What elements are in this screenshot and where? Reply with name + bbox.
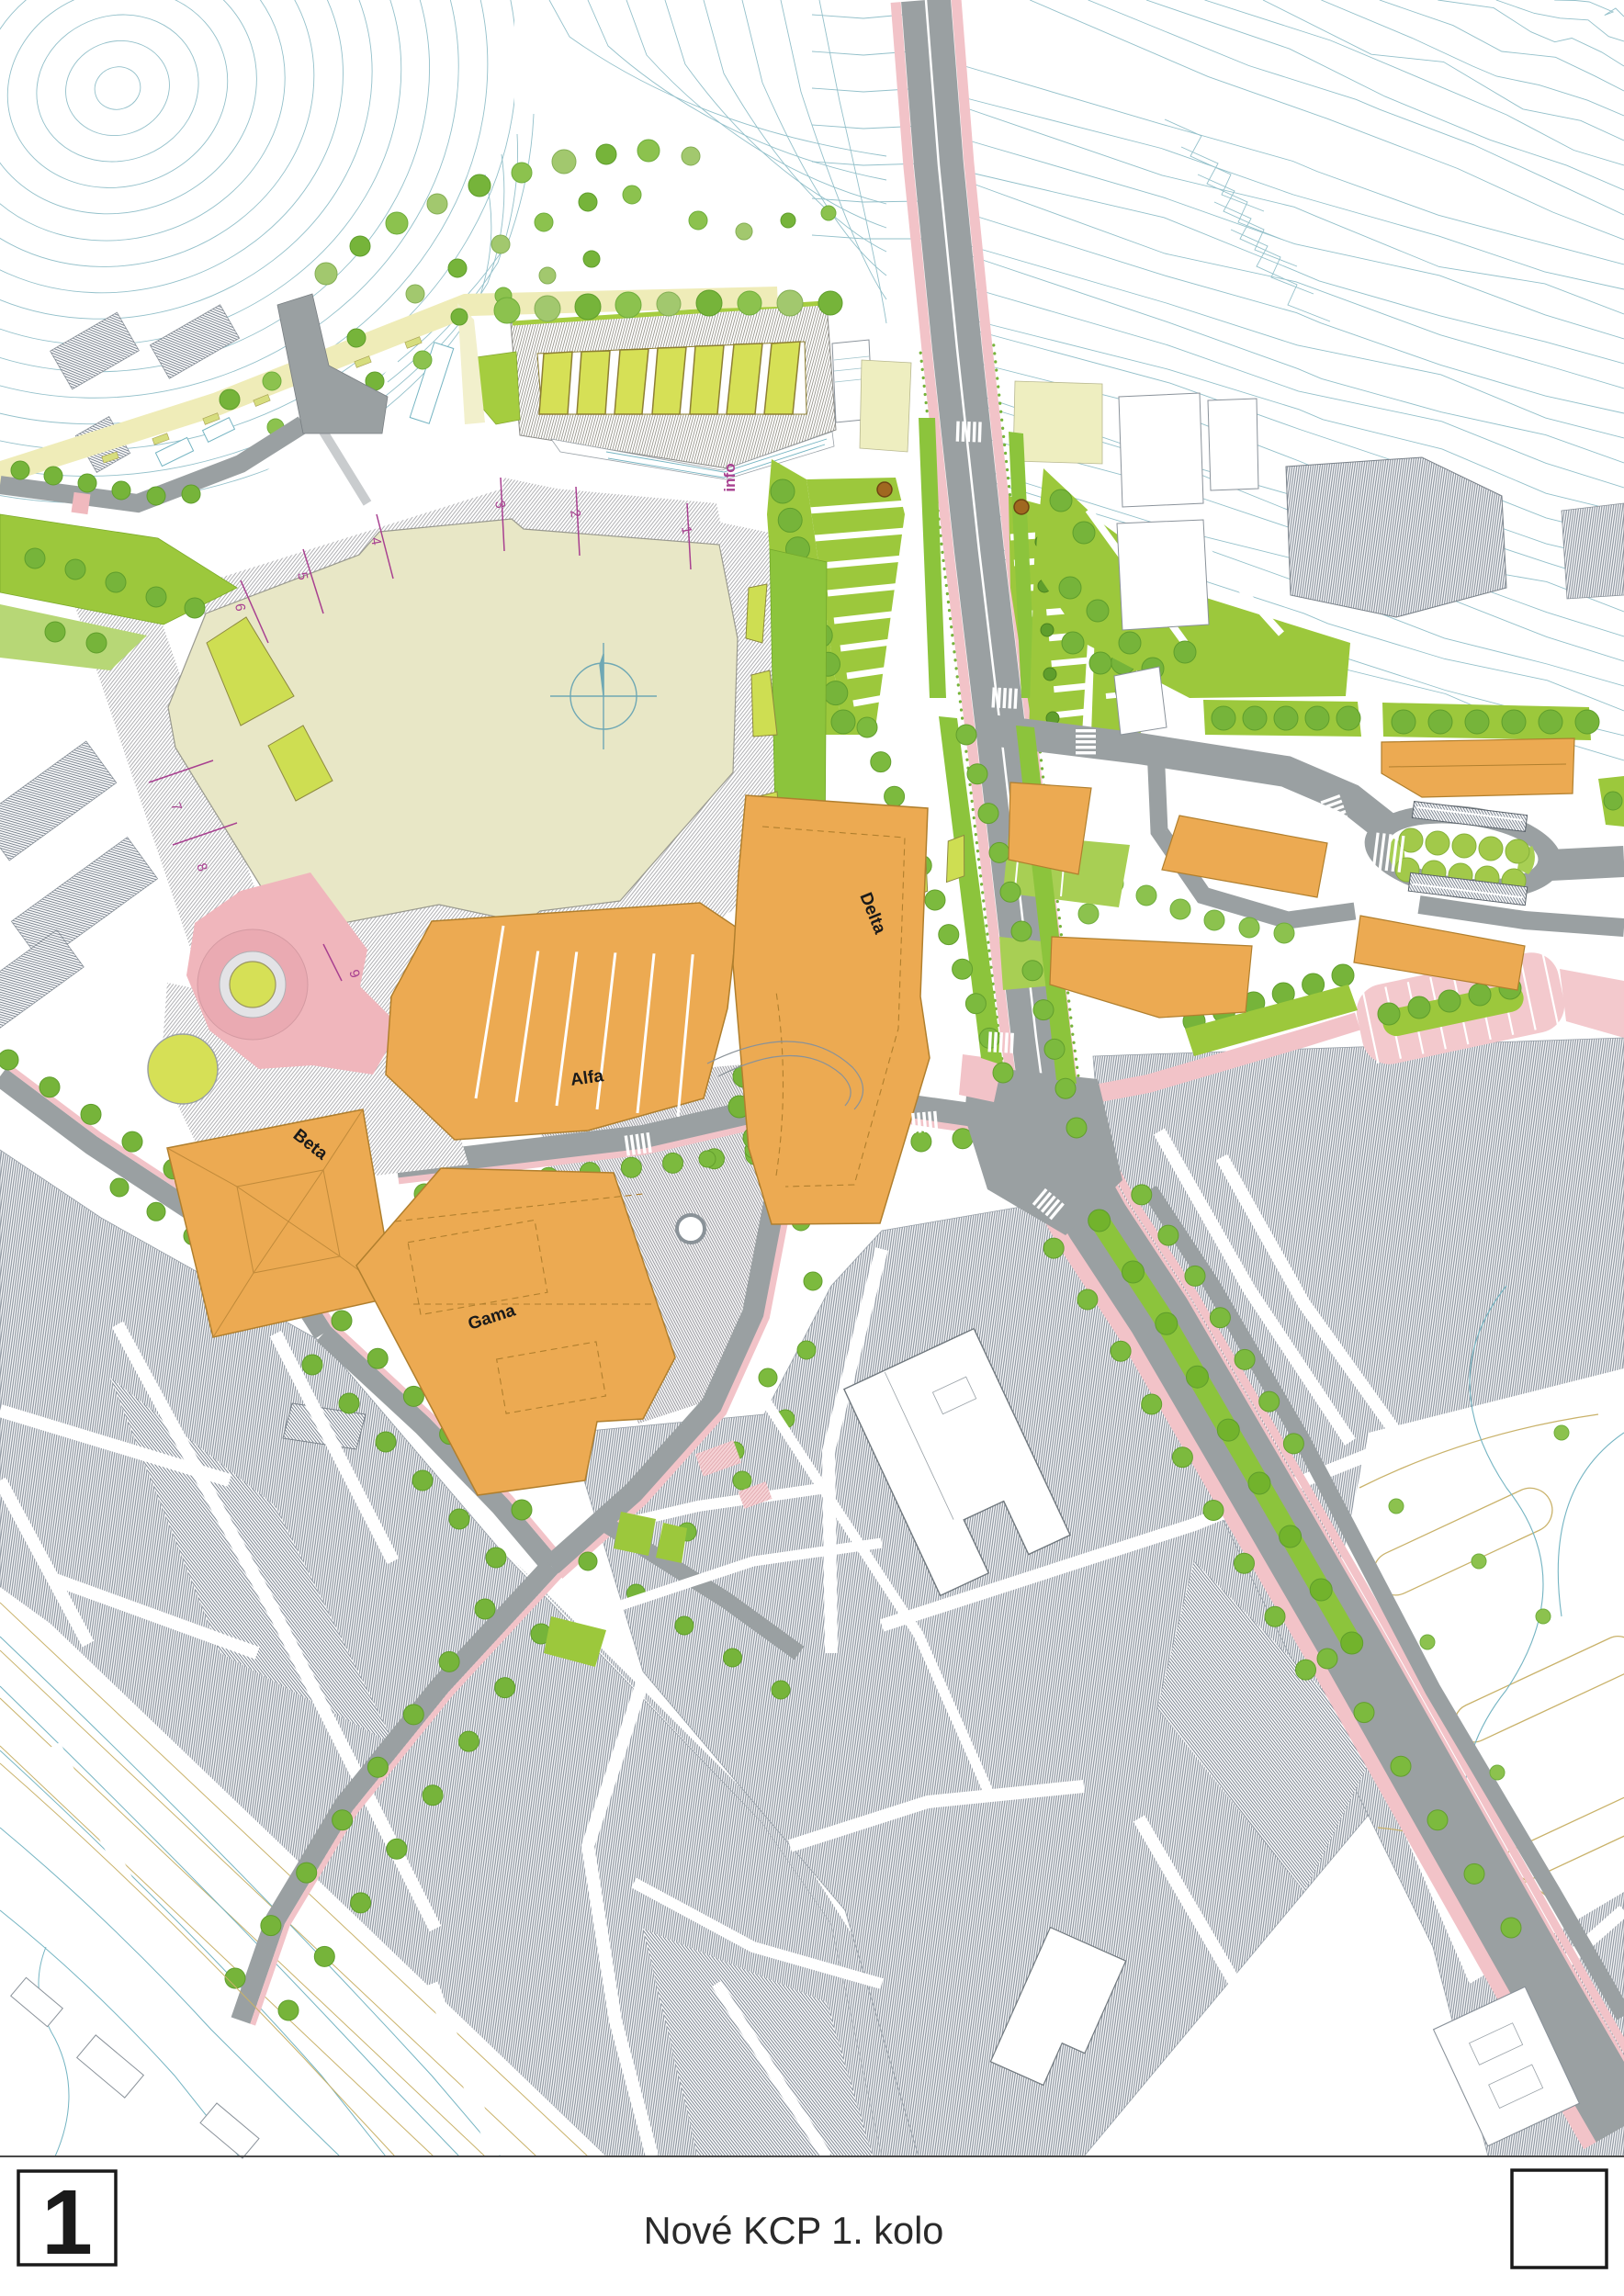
svg-text:info: info	[721, 463, 739, 491]
svg-text:1: 1	[41, 2171, 93, 2274]
svg-text:Nové KCP 1. kolo: Nové KCP 1. kolo	[644, 2209, 944, 2252]
